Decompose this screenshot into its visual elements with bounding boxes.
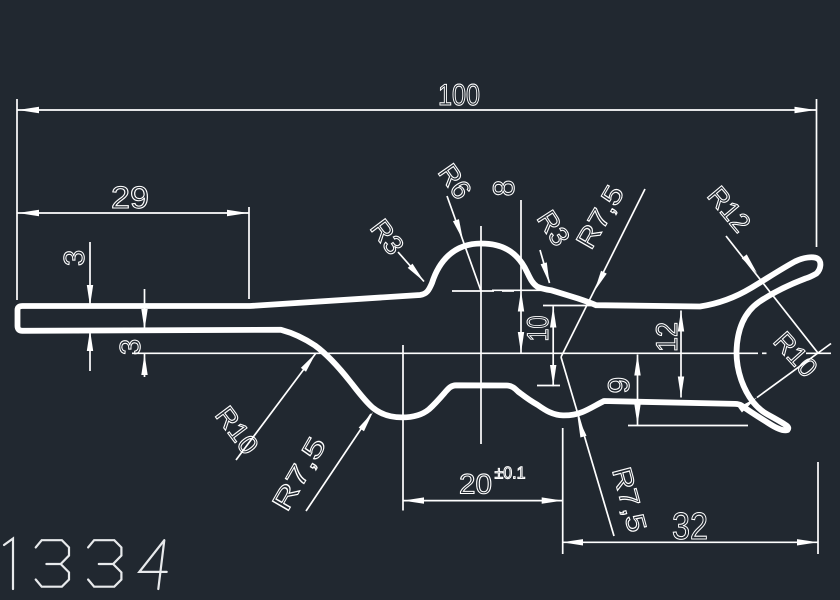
svg-text:3: 3	[115, 339, 147, 355]
svg-text:10: 10	[522, 316, 555, 342]
svg-text:3: 3	[59, 250, 91, 266]
svg-text:9: 9	[603, 377, 636, 394]
svg-text:100: 100	[438, 79, 480, 112]
svg-text:29: 29	[111, 180, 149, 215]
svg-text:±0.1: ±0.1	[495, 464, 526, 483]
svg-text:12: 12	[651, 322, 684, 352]
svg-text:32: 32	[672, 506, 708, 548]
svg-text:8: 8	[488, 180, 521, 197]
svg-text:20: 20	[459, 469, 492, 500]
